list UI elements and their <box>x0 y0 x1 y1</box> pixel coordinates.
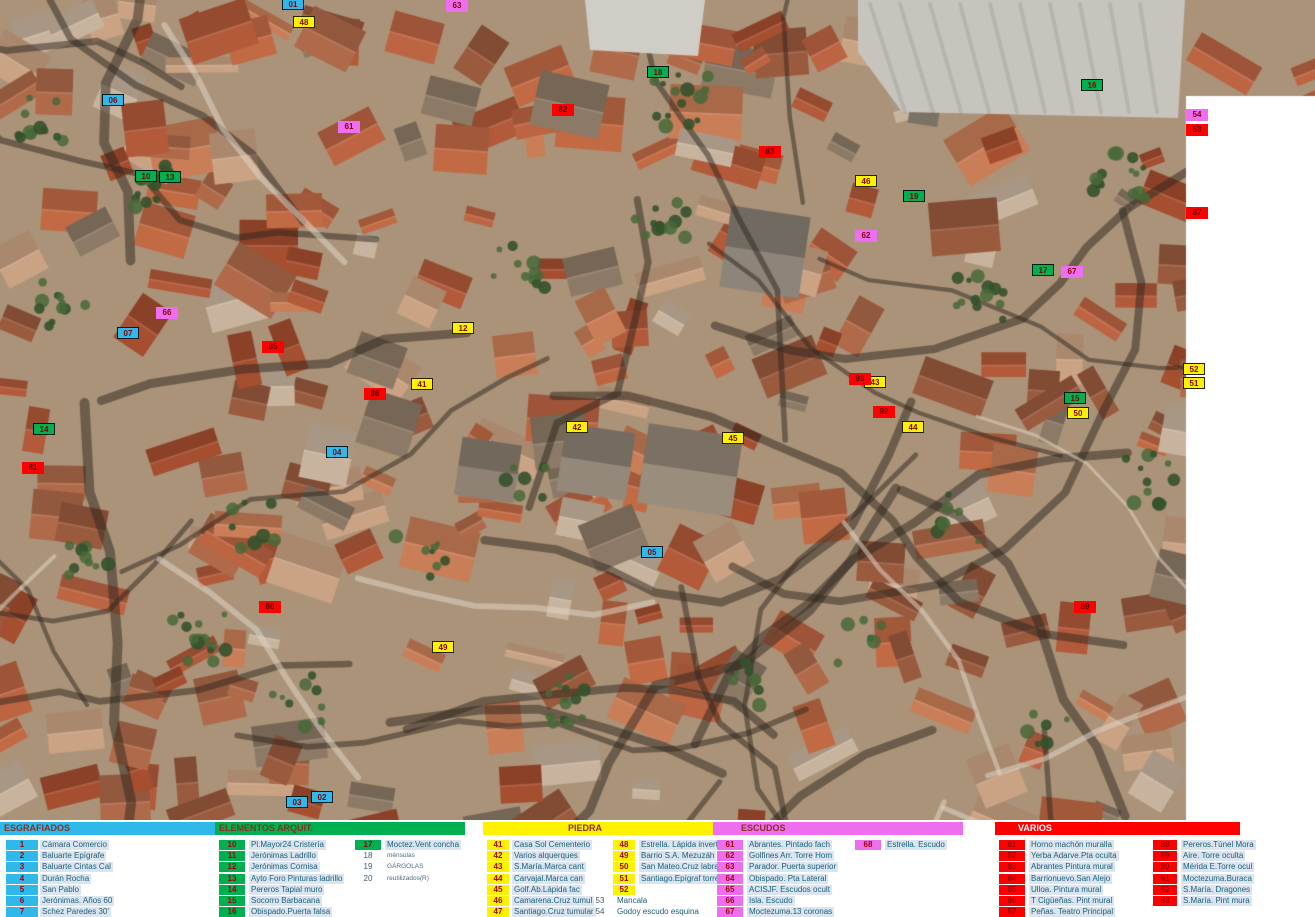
legend-item-label: Jerónimas Cornisa <box>249 862 320 872</box>
legend-item-label: Abrantes Pintura mural <box>1029 862 1115 872</box>
legend-item-number: 68 <box>855 840 881 850</box>
legend-item-label: Parador. Puerta superior <box>747 862 838 872</box>
map-marker-42[interactable]: 42 <box>566 421 588 433</box>
legend-item-label: reutilizados(R) <box>385 874 431 884</box>
map-marker-41[interactable]: 41 <box>411 378 433 390</box>
legend-item-label: Jerónimas. Años 60 <box>40 896 114 906</box>
map-marker-86[interactable]: 86 <box>364 388 386 400</box>
legend-item-number: 85 <box>999 885 1025 895</box>
legend-item-number: 84 <box>999 874 1025 884</box>
legend-item-label: ménsulas <box>385 851 417 861</box>
legend-item-number: 46 <box>487 896 509 906</box>
legend-item-number: 48 <box>613 840 635 850</box>
map-marker-50[interactable]: 50 <box>1067 407 1089 419</box>
legend-item-label: Obispado. Pta Lateral <box>747 874 828 884</box>
aerial-photo <box>0 0 1315 820</box>
legend-item-label: S.María. Pint mura <box>1181 896 1252 906</box>
legend-item-label: GÁRGOLAS <box>385 862 425 872</box>
map-marker-89[interactable]: 89 <box>1074 601 1096 613</box>
legend-item-number: 89 <box>1153 851 1177 861</box>
legend-item-number: 90 <box>1153 862 1177 872</box>
legend-item-number: 51 <box>613 874 635 884</box>
legend-item-number: 5 <box>6 885 38 895</box>
legend-item-number: 15 <box>219 896 245 906</box>
map-marker-51[interactable]: 51 <box>1183 377 1205 389</box>
map-marker-17[interactable]: 17 <box>1032 264 1054 276</box>
map-marker-13[interactable]: 13 <box>159 171 181 183</box>
legend-item-label: Golfines Arr. Torre Hom <box>747 851 834 861</box>
map-marker-85[interactable]: 85 <box>262 341 284 353</box>
legend-item-label: Pl.Mayor24 Cristería <box>249 840 326 850</box>
legend-item-number: 86 <box>999 896 1025 906</box>
legend-item-label: T Cigüeñas. Pint mural <box>1029 896 1114 906</box>
legend-item-number: 91 <box>1153 874 1177 884</box>
legend-panel-elementos-arquit: ELEMENTOS ARQUIT. 10Pl.Mayor24 Cristería… <box>215 820 465 917</box>
legend-item-label: San Pablo <box>40 885 81 895</box>
legend-item-number: 1 <box>6 840 38 850</box>
legend-item-number: 20 <box>355 874 381 884</box>
map-marker-10[interactable]: 10 <box>135 170 157 182</box>
legend-item-label: Carvajal.Marca can <box>512 874 585 884</box>
legend-strip: ESGRAFIADOS 1Cámara Comercio2Baluarte Ep… <box>0 820 1315 917</box>
legend-item-number: 81 <box>999 840 1025 850</box>
legend-item-label: Godoy escudo esquina <box>615 907 701 917</box>
map-marker-83[interactable]: 83 <box>759 146 781 158</box>
legend-item-number: 54 <box>589 907 611 917</box>
legend-item-number: 82 <box>999 851 1025 861</box>
legend-item-number: 45 <box>487 885 509 895</box>
legend-item-label: Barrio S.A. Mezuzáh <box>639 851 716 861</box>
legend-item-label: Pereros.Túnel Mora <box>1181 840 1256 850</box>
legend-item-label: Jerónimas Ladrillo <box>249 851 318 861</box>
legend-item-number: 53 <box>589 896 611 906</box>
legend-item-number: 93 <box>1153 896 1177 906</box>
map-marker-06[interactable]: 06 <box>102 94 124 106</box>
legend-item-label: Moctez.Vent concha <box>385 840 461 850</box>
legend-item-label: Mancala <box>615 896 649 906</box>
map-marker-45[interactable]: 45 <box>722 432 744 444</box>
legend-item-label: Ayto Foro Pinturas ladrillo <box>249 874 344 884</box>
legend-item-label: Ulloa. Pintura mural <box>1029 885 1103 895</box>
legend-item-label: Moctezuma.Buraca <box>1181 874 1254 884</box>
legend-item-number: 10 <box>219 840 245 850</box>
legend-item-number: 63 <box>717 862 743 872</box>
map-marker-82[interactable]: 82 <box>552 104 574 116</box>
legend-item-number: 87 <box>999 907 1025 917</box>
legend-item-label: Baluarte Epígrafe <box>40 851 106 861</box>
legend-item-label: S.María.Marca cant <box>512 862 586 872</box>
legend-panel-varios: VARIOS 81Horno machón muralla82Yerba Ada… <box>995 820 1240 917</box>
legend-header-escudos: ESCUDOS <box>713 822 963 835</box>
map-marker-54[interactable]: 54 <box>1186 109 1208 121</box>
map-marker-92[interactable]: 92 <box>873 406 895 418</box>
legend-item-label: Socorro Barbacana <box>249 896 322 906</box>
map-marker-93[interactable]: 93 <box>849 373 871 385</box>
legend-item-number: 47 <box>487 907 509 917</box>
map-marker-61[interactable]: 61 <box>338 121 360 133</box>
legend-item-label: Estrella. Escudo <box>885 840 947 850</box>
legend-item-label: Yerba Adarve.Pta oculta <box>1029 851 1119 861</box>
map-marker-63[interactable]: 63 <box>446 0 468 12</box>
legend-item-number: 17 <box>355 840 381 850</box>
legend-item-number: 67 <box>717 907 743 917</box>
map-marker-02[interactable]: 02 <box>311 791 333 803</box>
legend-item-number: 44 <box>487 874 509 884</box>
annotated-aerial-map: 0106070405030210131819161715144846124142… <box>0 0 1315 917</box>
map-marker-16[interactable]: 16 <box>1081 79 1103 91</box>
legend-item-number: 41 <box>487 840 509 850</box>
legend-panel-piedra: PIEDRA 41Casa Sol Cementerio42Varios alq… <box>483 820 713 917</box>
legend-item-label: Golf.Ab.Lápida fac <box>512 885 582 895</box>
legend-item-number: 3 <box>6 862 38 872</box>
legend-panel-escudos: ESCUDOS 61Abrantes. Pintado fach62Golfin… <box>713 820 963 917</box>
legend-item-label: Abrantes. Pintado fach <box>747 840 832 850</box>
legend-item-number: 6 <box>6 896 38 906</box>
legend-item-number: 61 <box>717 840 743 850</box>
map-marker-53[interactable]: 53 <box>1186 124 1208 136</box>
legend-item-label: Schez Paredes 30' <box>40 907 111 917</box>
legend-item-label: Moctezuma.13 coronas <box>747 907 834 917</box>
legend-item-label: Casa Sol Cementerio <box>512 840 592 850</box>
map-marker-67[interactable]: 67 <box>1061 266 1083 278</box>
map-marker-52[interactable]: 52 <box>1183 363 1205 375</box>
legend-item-number: 92 <box>1153 885 1177 895</box>
map-marker-44[interactable]: 44 <box>902 421 924 433</box>
legend-item-number: 4 <box>6 874 38 884</box>
legend-item-number: 50 <box>613 862 635 872</box>
legend-panel-esgrafiados: ESGRAFIADOS 1Cámara Comercio2Baluarte Ep… <box>0 820 218 917</box>
map-marker-49[interactable]: 49 <box>432 641 454 653</box>
legend-item-number: 12 <box>219 862 245 872</box>
legend-item-number: 14 <box>219 885 245 895</box>
map-marker-88[interactable]: 88 <box>259 601 281 613</box>
legend-item-number: 7 <box>6 907 38 917</box>
legend-item-label: Pereros Tapial muro <box>249 885 324 895</box>
legend-item-label: Mérida E.Torre ocul <box>1181 862 1254 872</box>
legend-item-number: 11 <box>219 851 245 861</box>
map-marker-01[interactable]: 01 <box>282 0 304 10</box>
legend-item-label: Horno machón muralla <box>1029 840 1114 850</box>
legend-item-number: 64 <box>717 874 743 884</box>
legend-item-label: Santiago.Cruz tumular <box>512 907 596 917</box>
map-marker-03[interactable]: 03 <box>286 796 308 808</box>
legend-item-number: 66 <box>717 896 743 906</box>
legend-item-label: Cámara Comercio <box>40 840 109 850</box>
legend-item-label: Baluarte Cintas Cal <box>40 862 113 872</box>
legend-item-label: S.María. Dragones <box>1181 885 1252 895</box>
map-marker-19[interactable]: 19 <box>903 190 925 202</box>
map-marker-07[interactable]: 07 <box>117 327 139 339</box>
map-marker-62[interactable]: 62 <box>855 230 877 242</box>
legend-item-number: 2 <box>6 851 38 861</box>
legend-item-number: 62 <box>717 851 743 861</box>
legend-header-varios: VARIOS <box>995 822 1240 835</box>
legend-item-number: 16 <box>219 907 245 917</box>
legend-item-number: 42 <box>487 851 509 861</box>
legend-item-number: 83 <box>999 862 1025 872</box>
legend-item-label: Varios alquerques <box>512 851 580 861</box>
map-marker-48[interactable]: 48 <box>293 16 315 28</box>
legend-header-piedra: PIEDRA <box>483 822 713 835</box>
map-marker-12[interactable]: 12 <box>452 322 474 334</box>
legend-item-label: Peñas. Teatro Principal <box>1029 907 1115 917</box>
legend-item-number: 49 <box>613 851 635 861</box>
map-marker-81[interactable]: 81 <box>22 462 44 474</box>
map-marker-15[interactable]: 15 <box>1064 392 1086 404</box>
map-marker-04[interactable]: 04 <box>326 446 348 458</box>
legend-item-label: Aire. Torre oculta <box>1181 851 1245 861</box>
legend-item-number: 88 <box>1153 840 1177 850</box>
legend-item-label: Durán Rocha <box>40 874 91 884</box>
legend-item-label: Santiago.Epígraf torre <box>639 874 721 884</box>
legend-item-number: 18 <box>355 851 381 861</box>
legend-item-number: 43 <box>487 862 509 872</box>
legend-item-label: Barrionuevo.San Alejo <box>1029 874 1112 884</box>
legend-item-label: Obispado.Puerta falsa <box>249 907 332 917</box>
legend-item-number: 65 <box>717 885 743 895</box>
map-marker-87[interactable]: 87 <box>1186 207 1208 219</box>
legend-header-elementos-arquit: ELEMENTOS ARQUIT. <box>215 822 465 835</box>
map-marker-18[interactable]: 18 <box>647 66 669 78</box>
legend-item-number: 13 <box>219 874 245 884</box>
legend-item-number: 52 <box>613 885 635 895</box>
map-marker-05[interactable]: 05 <box>641 546 663 558</box>
map-marker-46[interactable]: 46 <box>855 175 877 187</box>
legend-item-label: ACISJF. Escudos ocult <box>747 885 832 895</box>
legend-header-esgrafiados: ESGRAFIADOS <box>0 822 218 835</box>
legend-item-number: 19 <box>355 862 381 872</box>
legend-item-label: Camarena.Cruz tumul <box>512 896 594 906</box>
legend-item-label: Isla. Escudo <box>747 896 795 906</box>
map-marker-66[interactable]: 66 <box>156 307 178 319</box>
map-marker-14[interactable]: 14 <box>33 423 55 435</box>
